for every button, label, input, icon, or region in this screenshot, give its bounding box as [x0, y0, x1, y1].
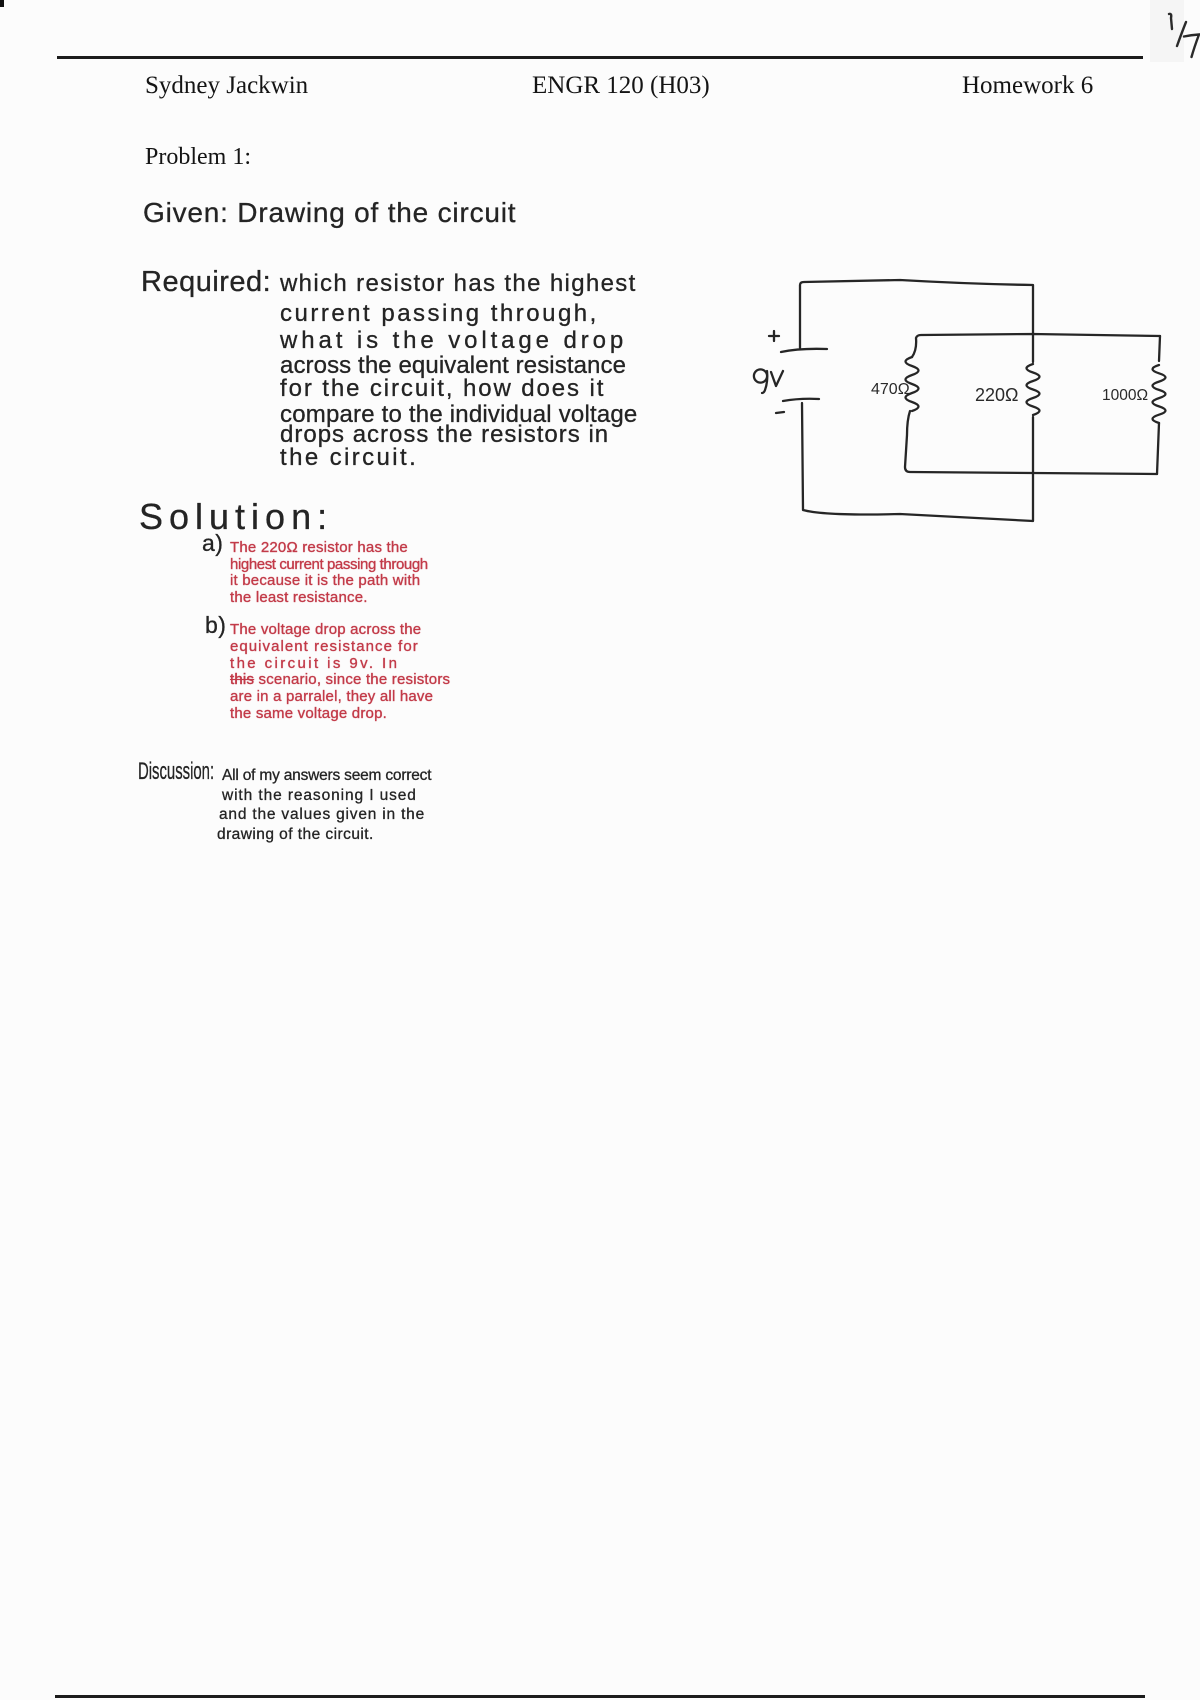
svg-text:220Ω: 220Ω [975, 385, 1019, 405]
svg-text:1000Ω: 1000Ω [1102, 387, 1148, 404]
svg-text:470Ω: 470Ω [871, 381, 910, 398]
